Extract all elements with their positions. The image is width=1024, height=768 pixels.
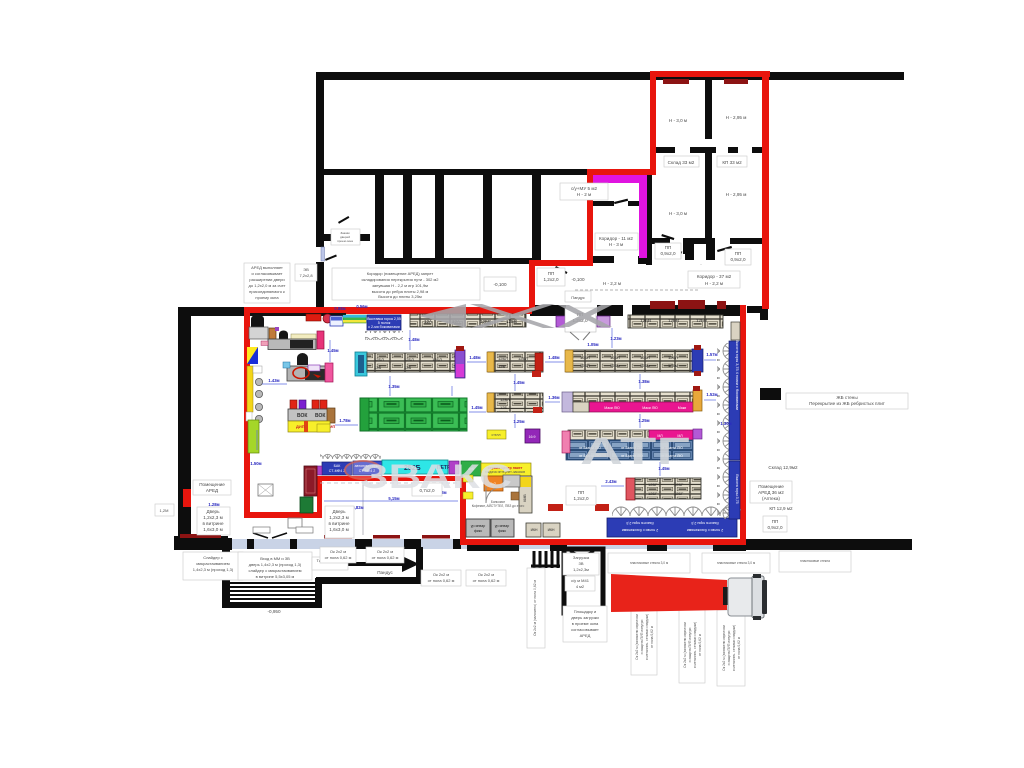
svg-text:2.43м: 2.43м [605, 479, 616, 484]
svg-text:5,15м: 5,15м [388, 496, 399, 501]
svg-text:в витрине 5,5х3,05 м: в витрине 5,5х3,05 м [256, 574, 295, 579]
svg-text:12БГ: 12БГ [674, 491, 684, 496]
svg-text:от пола 0,62 м: от пола 0,62 м [372, 555, 399, 560]
svg-text:Высота горы 3,75: Высота горы 3,75 [735, 474, 739, 503]
svg-text:1.45м: 1.45м [327, 348, 338, 353]
svg-text:ЭВ: ЭВ [303, 267, 309, 272]
svg-text:12Бм: 12Бм [668, 363, 678, 368]
svg-text:пластиковые стекла 3,0 м: пластиковые стекла 3,0 м [717, 561, 755, 565]
svg-text:1.35м: 1.35м [388, 384, 399, 389]
svg-text:1.48м: 1.48м [408, 337, 419, 342]
svg-text:12БЛ: 12БЛ [404, 357, 414, 362]
svg-text:в витрине: в витрине [202, 521, 223, 526]
svg-text:12БЛ: 12БЛ [518, 356, 528, 361]
svg-text:1,4х2,3 м (проход 1,3): 1,4х2,3 м (проход 1,3) [193, 567, 234, 572]
svg-text:1,2х2,3м: 1,2х2,3м [573, 567, 589, 572]
svg-text:1.25м: 1.25м [638, 418, 649, 423]
svg-text:1.48м: 1.48м [469, 355, 480, 360]
svg-text:12БЛ: 12БЛ [498, 356, 508, 361]
svg-text:ПП: ПП [772, 519, 779, 524]
svg-text:(Аптека): (Аптека) [762, 496, 780, 501]
svg-text:и защита ПУП изнутри: и защита ПУП изнутри [640, 620, 644, 655]
svg-text:Помещение: Помещение [758, 484, 784, 489]
svg-text:Н - 2,95 м: Н - 2,95 м [726, 115, 747, 120]
svg-text:2 полки с боковинами: 2 полки с боковинами [687, 528, 723, 532]
svg-text:Ок 2х2 м (заложено кирпичом: Ок 2х2 м (заложено кирпичом [635, 613, 639, 659]
svg-text:1.45м: 1.45м [513, 380, 524, 385]
svg-text:расширении двери: расширении двери [249, 277, 284, 282]
svg-text:Н - 2,2 м: Н - 2,2 м [603, 281, 621, 286]
svg-text:Загрузка: Загрузка [573, 555, 590, 560]
svg-text:с/у+МУ 5 м2: с/у+МУ 5 м2 [571, 186, 598, 191]
svg-text:1.48м: 1.48м [548, 355, 559, 360]
svg-text:1.45м: 1.45м [471, 405, 482, 410]
svg-text:12БГ: 12БГ [648, 482, 658, 487]
svg-text:и защита ПУП изнутри: и защита ПУП изнутри [688, 628, 692, 663]
svg-text:Высота горы 2,5: Высота горы 2,5 [691, 521, 718, 525]
svg-text:от пола 0,62 м: от пола 0,62 м [650, 625, 654, 648]
svg-text:12А: 12А [424, 319, 432, 324]
svg-text:4 м2: 4 м2 [576, 584, 585, 589]
svg-text:от пола 0,62 м: от пола 0,62 м [737, 636, 741, 659]
svg-text:1.30м: 1.30м [720, 421, 731, 426]
svg-text:1.50м: 1.50м [250, 461, 261, 466]
svg-text:12БЛ: 12БЛ [610, 355, 620, 360]
svg-text:12БЛ: 12БЛ [432, 357, 442, 362]
svg-text:Высота горы 2,5: Высота горы 2,5 [626, 521, 653, 525]
svg-text:Перекрытие из ЖБ ребристых пли: Перекрытие из ЖБ ребристых плит [809, 401, 886, 406]
svg-text:12Б: 12Б [498, 364, 505, 369]
svg-text:12БЛ: 12БЛ [580, 355, 590, 360]
svg-text:АРЕД: АРЕД [580, 633, 591, 638]
svg-text:АТГ: АТГ [580, 431, 690, 473]
svg-text:ЗВАКС: ЗВАКС [360, 458, 512, 496]
svg-text:1.52м: 1.52м [706, 392, 717, 397]
svg-text:1.28м: 1.28м [208, 502, 219, 507]
svg-text:Ок 2х2 м (заложено кирпичом: Ок 2х2 м (заложено кирпичом [722, 624, 726, 670]
svg-text:присоединяемого к: присоединяемого к [249, 289, 285, 294]
svg-text:Маки: Маки [678, 406, 687, 410]
svg-text:стелл: стелл [492, 433, 501, 437]
svg-text:проем окна: проем окна [337, 239, 353, 243]
svg-text:12БЛ: 12БЛ [374, 357, 384, 362]
svg-text:12БГ: 12БГ [648, 491, 658, 496]
svg-text:Высота до плиты 3,25м: Высота до плиты 3,25м [378, 294, 422, 299]
svg-text:12БВ: 12БВ [668, 318, 679, 323]
svg-text:в витрине: в витрине [328, 521, 349, 526]
svg-text:ДИП: ДИП [296, 424, 305, 429]
svg-text:1.38м: 1.38м [638, 379, 649, 384]
svg-text:1,2х2,0: 1,2х2,0 [543, 277, 559, 282]
svg-text:Ок 2х2 м: Ок 2х2 м [330, 549, 347, 554]
svg-text:12Б: 12Б [374, 365, 381, 370]
svg-text:Н - 3,0 м: Н - 3,0 м [669, 118, 687, 123]
svg-text:Склад 12,9м2: Склад 12,9м2 [768, 465, 798, 470]
svg-text:1,2х2,3 м: 1,2х2,3 м [329, 515, 349, 520]
svg-text:1,6х3,0 м: 1,6х3,0 м [203, 527, 223, 532]
svg-text:2 полки с боковинами: 2 полки с боковинами [622, 528, 658, 532]
svg-text:от пола 0,62 м: от пола 0,62 м [473, 578, 500, 583]
svg-text:-0,950: -0,950 [267, 609, 280, 614]
svg-text:12БВ: 12БВ [640, 318, 651, 323]
svg-text:Ок 2х2 м (заложено) от пола 0,: Ок 2х2 м (заложено) от пола 0,62 м [533, 579, 537, 635]
svg-text:12БЛ: 12БЛ [500, 397, 510, 402]
svg-text:-0,100: -0,100 [571, 277, 584, 282]
svg-text:1.43м: 1.43м [268, 378, 279, 383]
svg-text:Н - 3 м: Н - 3 м [609, 242, 623, 247]
svg-text:Н - 2,95 м: Н - 2,95 м [726, 192, 747, 197]
svg-text:и металлич. сетками снаружи): и металлич. сетками снаружи) [732, 625, 736, 671]
svg-text:12Бм: 12Бм [610, 363, 620, 368]
svg-text:Ок 2х2 м: Ок 2х2 м [377, 549, 394, 554]
svg-text:АРЕД 36 м2: АРЕД 36 м2 [758, 490, 784, 495]
svg-text:ИКН: ИКН [531, 528, 538, 532]
svg-text:микрастаиванием: микрастаиванием [196, 561, 229, 566]
svg-text:Вход в ММ и ЗВ: Вход в ММ и ЗВ [260, 556, 290, 561]
svg-text:КП 12,9 м2: КП 12,9 м2 [769, 506, 793, 511]
svg-text:1.57м: 1.57м [706, 352, 717, 357]
svg-text:16:9: 16:9 [529, 435, 536, 439]
svg-text:от пола 0,62 м: от пола 0,62 м [428, 578, 455, 583]
svg-text:и защита ПУП изнутри: и защита ПУП изнутри [727, 631, 731, 666]
svg-text:дверь 1,4х2,3 м (проход 1,3): дверь 1,4х2,3 м (проход 1,3) [249, 562, 302, 567]
svg-text:ЖБ стены: ЖБ стены [836, 395, 857, 400]
svg-text:12Б: 12Б [500, 405, 507, 410]
svg-text:Площадку и: Площадку и [574, 609, 596, 614]
svg-text:12Бм: 12Бм [640, 363, 650, 368]
svg-text:пластиковые стекла: пластиковые стекла [800, 559, 830, 563]
svg-text:ПП: ПП [735, 251, 742, 256]
svg-text:Коридор (помещение АРЕД) запре: Коридор (помещение АРЕД) запрет [367, 271, 434, 276]
svg-text:с 2-мя боковинами: с 2-мя боковинами [368, 325, 399, 329]
svg-text:Ок 2х2 м: Ок 2х2 м [478, 572, 495, 577]
svg-text:слайдер с микрастаиванием: слайдер с микрастаиванием [249, 568, 302, 573]
svg-text:1.36м: 1.36м [548, 395, 559, 400]
svg-text:Пандус: Пандус [571, 295, 585, 300]
svg-text:Ок 2х2 м (заложено кирпичом: Ок 2х2 м (заложено кирпичом [683, 621, 687, 667]
svg-text:ПП: ПП [665, 245, 672, 250]
svg-text:Маки ЛЮ: Маки ЛЮ [604, 406, 620, 410]
svg-text:-0,100: -0,100 [493, 282, 506, 287]
svg-text:Склад 33 м2: Склад 33 м2 [668, 160, 695, 165]
svg-text:в проеме окна: в проеме окна [572, 621, 599, 626]
svg-text:Дверь: Дверь [206, 509, 220, 514]
svg-text:ПП: ПП [578, 490, 585, 495]
svg-text:12БЛ: 12БЛ [640, 355, 650, 360]
svg-text:складирования перекрытия пути: складирования перекрытия пути - 302 м2 [362, 277, 440, 282]
svg-text:с/у м М41: с/у м М41 [571, 578, 590, 583]
svg-text:12БВ: 12БВ [696, 318, 707, 323]
svg-text:Ок 2х2 м: Ок 2х2 м [433, 572, 450, 577]
svg-text:0,9х2,0: 0,9х2,0 [660, 251, 676, 256]
svg-text:проему окна: проему окна [255, 295, 279, 300]
svg-text:КМВ: КМВ [523, 494, 527, 502]
svg-text:Н - 3,0 м: Н - 3,0 м [669, 211, 687, 216]
svg-text:Дверь: Дверь [332, 509, 346, 514]
svg-text:ИКН: ИКН [548, 528, 555, 532]
svg-text:12БВ: 12БВ [506, 319, 517, 324]
svg-text:и металлич. сетками снаружи): и металлич. сетками снаружи) [693, 622, 697, 668]
svg-text:дверь загрузки: дверь загрузки [571, 615, 599, 620]
svg-text:ПП: ПП [548, 271, 555, 276]
svg-text:0,9х2,0: 0,9х2,0 [767, 525, 783, 530]
svg-text:ВОК: ВОК [315, 413, 326, 419]
svg-text:Маки ЛЮ: Маки ЛЮ [642, 406, 658, 410]
svg-text:1,2х2,0: 1,2х2,0 [573, 496, 589, 501]
svg-text:12БЛ: 12БЛ [668, 355, 678, 360]
svg-text:0,9х2,0: 0,9х2,0 [730, 257, 746, 262]
svg-text:СТ-МФ4 2: СТ-МФ4 2 [329, 469, 346, 473]
svg-text:1,2М: 1,2М [160, 508, 169, 513]
svg-text:12БГ: 12БГ [674, 482, 684, 487]
svg-text:ур.январ: ур.январ [471, 524, 486, 528]
svg-text:Коридор - 11 м2: Коридор - 11 м2 [599, 236, 633, 241]
svg-text:от пола 0,62 м: от пола 0,62 м [698, 633, 702, 656]
svg-text:Высота горы 3,75 4 полки с б: Высота горы 3,75 4 полки с боковинами [735, 340, 739, 410]
svg-text:фикс: фикс [474, 529, 483, 533]
svg-text:Н - 2 м: Н - 2 м [577, 192, 591, 197]
svg-text:Н - 2,2 м: Н - 2,2 м [705, 281, 723, 286]
svg-text:АРЕД выполняет: АРЕД выполняет [251, 265, 283, 270]
svg-text:согласовывает: согласовывает [571, 627, 599, 632]
svg-text:1.78м: 1.78м [339, 418, 350, 423]
svg-text:фикс: фикс [498, 529, 507, 533]
svg-text:занувшая Н - 2,2 м игр: занувшая Н - 2,2 м игр 101,9м [372, 283, 428, 288]
svg-text:от пола 0,62 м: от пола 0,62 м [325, 555, 352, 560]
svg-text:12Б: 12Б [404, 365, 411, 370]
svg-text:ур.январ: ур.январ [495, 524, 510, 528]
svg-text:до 1,2х2,0 м за счет: до 1,2х2,0 м за счет [249, 283, 286, 288]
svg-text:АРЕД: АРЕД [206, 488, 219, 493]
svg-text:0.56м: 0.56м [356, 304, 367, 309]
svg-text:1.05м: 1.05м [587, 342, 598, 347]
svg-text:ВОК: ВОК [297, 413, 308, 419]
svg-text:Пандус: Пандус [377, 570, 393, 575]
svg-text:12БЛ: 12БЛ [580, 363, 590, 368]
svg-text:Коридор - 37 м2: Коридор - 37 м2 [697, 274, 732, 279]
svg-text:КП 33 м2: КП 33 м2 [722, 160, 742, 165]
svg-text:Кофемат, АЙСТУТЕЛ, ПВЗ до этог: Кофемат, АЙСТУТЕЛ, ПВЗ до этого [472, 504, 525, 508]
svg-text:7,2х2,8: 7,2х2,8 [299, 273, 313, 278]
svg-text:1.25м: 1.25м [513, 419, 524, 424]
svg-text:Помещение: Помещение [199, 482, 225, 487]
svg-text:и металлич. сетками снаружи): и металлич. сетками снаружи) [645, 614, 649, 660]
svg-text:и согласовывает: и согласовывает [251, 271, 282, 276]
svg-text:1,6х3,0 м: 1,6х3,0 м [329, 527, 349, 532]
svg-text:0.88м: 0.88м [334, 306, 345, 311]
svg-text:БАК: БАК [334, 464, 342, 468]
svg-text:ЗВ: ЗВ [578, 561, 583, 566]
svg-text:1,2х2,3 м: 1,2х2,3 м [203, 515, 223, 520]
svg-text:Слайдер с: Слайдер с [203, 555, 223, 560]
svg-text:пластиковые стекла 3,0 м: пластиковые стекла 3,0 м [630, 561, 668, 565]
svg-text:1.23м: 1.23м [610, 336, 621, 341]
